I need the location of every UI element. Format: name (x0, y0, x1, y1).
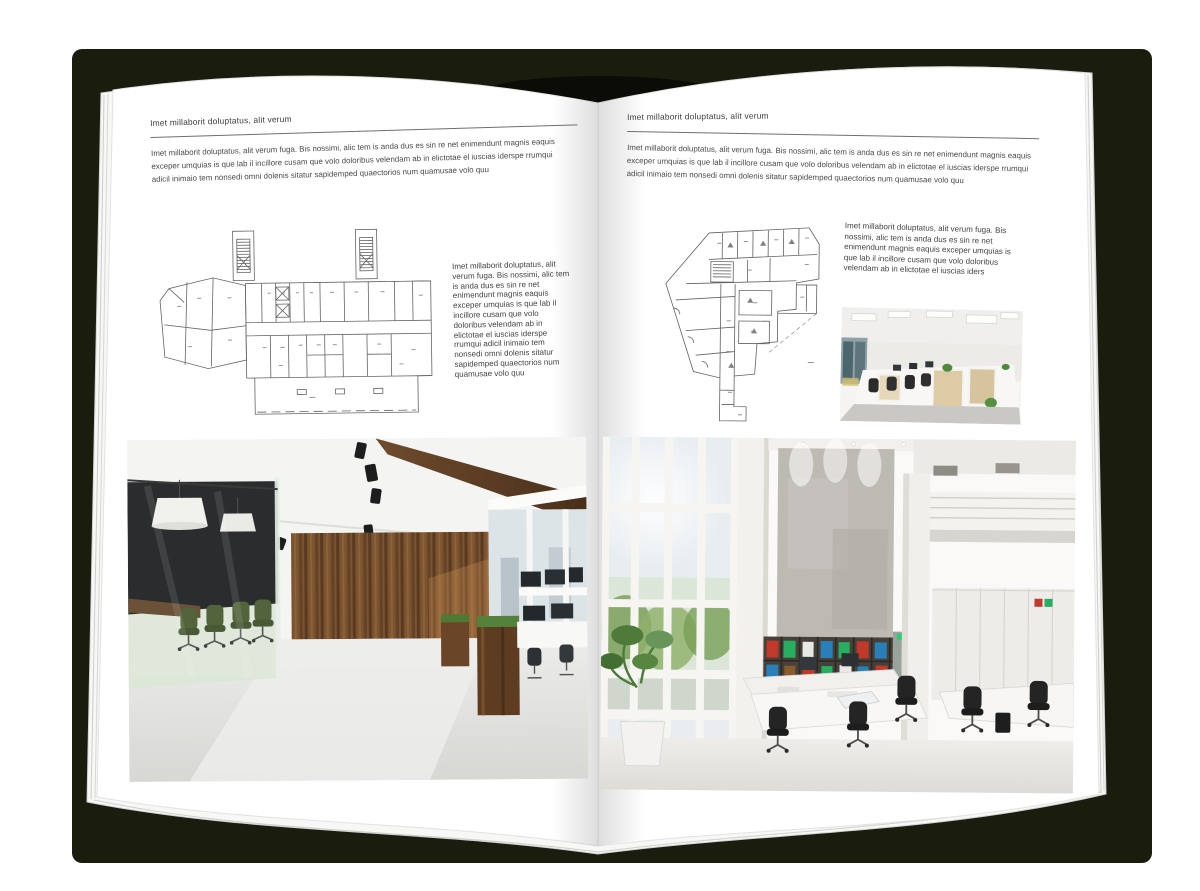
office-photo-left (127, 437, 588, 782)
book-mockup: Imet millaborit doluptatus, alit verum I… (0, 0, 1200, 891)
right-header-rule (627, 131, 1039, 139)
right-page-head: Imet millaborit doluptatus, alit verum I… (627, 108, 1046, 180)
plan-label-marks (177, 291, 424, 399)
right-side-paragraph: Imet millaborit doluptatus, alit verum f… (843, 221, 1027, 280)
plan-door-symbols (726, 238, 795, 368)
left-page-head: Imet millaborit doluptatus, alit verum I… (150, 105, 584, 186)
left-side-paragraph: Imet millaborit doluptatus, alit verum f… (452, 259, 573, 379)
office-photo-small (840, 307, 1023, 425)
plan-label-marks (715, 237, 815, 415)
office-photo-right (600, 436, 1076, 794)
left-floor-plan (156, 224, 453, 420)
right-floor-plan (644, 218, 840, 424)
